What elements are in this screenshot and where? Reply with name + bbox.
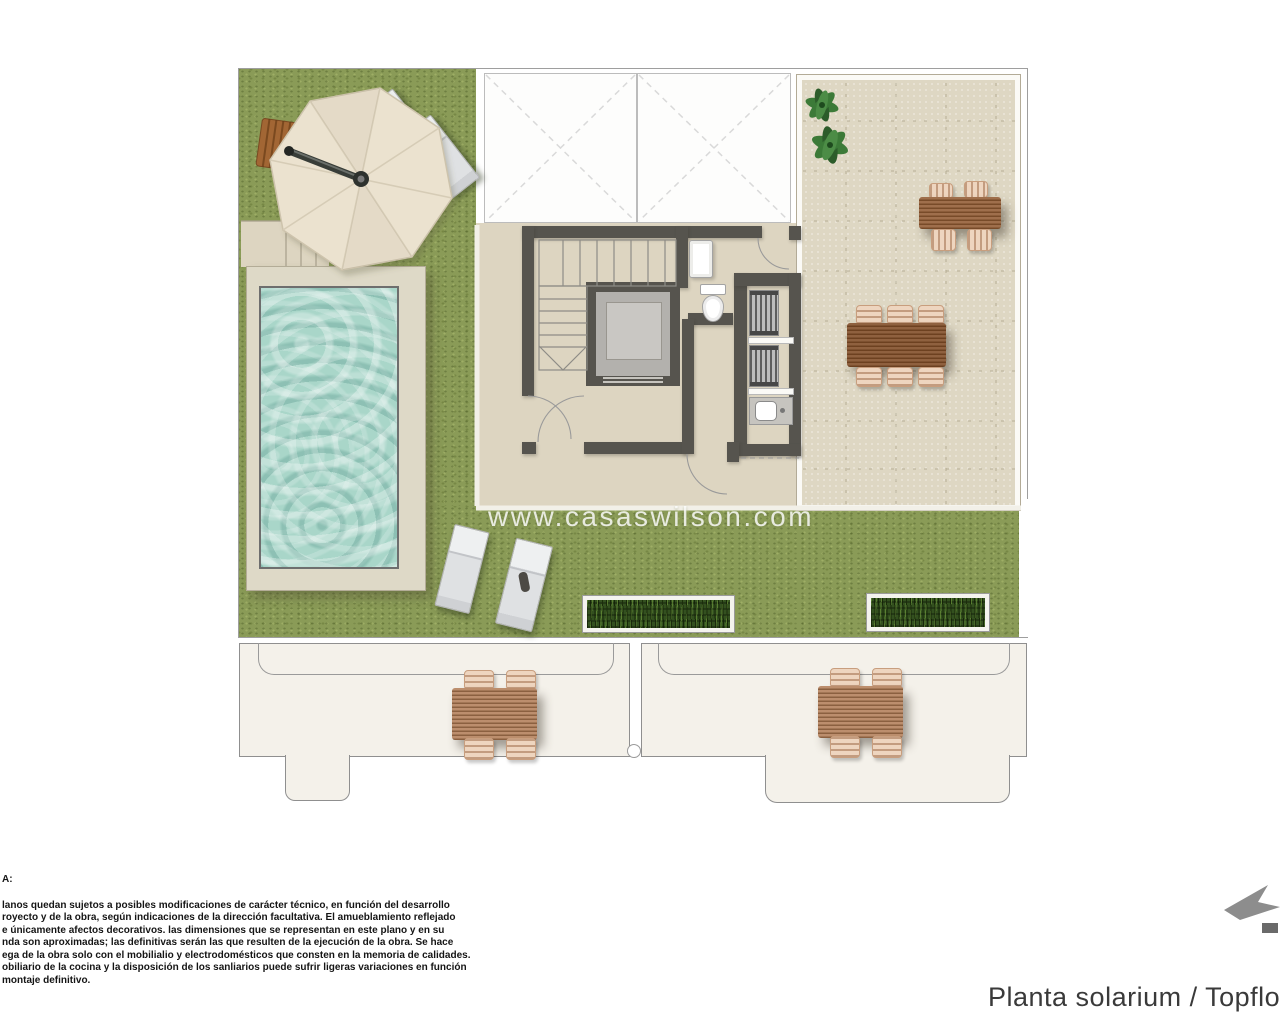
- chair: [872, 668, 902, 688]
- note-line: ega de la obra solo con el mobilialio y …: [2, 950, 432, 963]
- chair: [830, 736, 860, 758]
- staircase: [539, 240, 676, 370]
- chair: [887, 367, 913, 387]
- note-line: montaje definitivo.: [2, 975, 432, 988]
- lower-table-left: [452, 688, 537, 740]
- chair: [872, 736, 902, 758]
- parasol-arm-joint: [284, 146, 294, 156]
- logo-square: [1262, 923, 1278, 933]
- chair: [887, 305, 913, 325]
- chair: [856, 367, 882, 387]
- sink-counter: [749, 397, 793, 425]
- chair: [964, 181, 988, 198]
- chair: [506, 738, 536, 760]
- legal-note: A: lanos quedan sujetos a posibles modif…: [2, 874, 432, 987]
- lower-room-right-notch: [765, 755, 1010, 803]
- page-title: Planta solarium / Topfloor: [988, 982, 1280, 1013]
- lower-table-right: [818, 686, 903, 738]
- shelf: [748, 337, 794, 344]
- skylight-x-marks: [486, 75, 789, 221]
- cistern: [689, 240, 713, 278]
- note-line: e únicamente afectos decorativos. las di…: [2, 925, 432, 938]
- logo-arrow: [1224, 885, 1280, 920]
- louvre-unit-top: [750, 291, 778, 335]
- lower-room-left-notch: [285, 755, 350, 801]
- overhang-line-left: [258, 643, 614, 675]
- watermark: www.casaswilson.com: [488, 501, 814, 533]
- faucet: [780, 408, 785, 413]
- note-line: royecto y de la obra, según indicaciones…: [2, 912, 432, 925]
- lower-terraces: [238, 638, 1028, 818]
- parasol-hub-center: [358, 176, 365, 183]
- sink-basin: [755, 401, 777, 421]
- parasol: [244, 79, 469, 289]
- chair: [464, 670, 494, 690]
- chair: [830, 668, 860, 688]
- chair: [464, 738, 494, 760]
- page: www.casaswilson.com A: lanos quedan suje…: [0, 0, 1280, 1024]
- louvre-unit-bottom: [750, 346, 778, 386]
- chair: [506, 670, 536, 690]
- note-line: obiliario de la cocina y la disposición …: [2, 962, 432, 975]
- leaf-cluster: [804, 87, 840, 123]
- potted-plant: [792, 83, 877, 178]
- divider-notch: [627, 744, 641, 758]
- elevator-door-sill: [603, 378, 663, 382]
- dining-table-four-seats: [919, 197, 1001, 229]
- chair: [856, 305, 882, 325]
- chair: [967, 229, 992, 251]
- leaf-cluster: [810, 125, 850, 165]
- chair: [918, 305, 944, 325]
- note-line: lanos quedan sujetos a posibles modifica…: [2, 900, 432, 913]
- shelf: [748, 388, 794, 395]
- note-heading: A:: [2, 874, 432, 887]
- solarium-plan: www.casaswilson.com: [238, 68, 1028, 638]
- toilet-tank: [700, 284, 726, 295]
- chair: [931, 229, 956, 251]
- chair: [918, 367, 944, 387]
- company-logo: [1224, 885, 1280, 937]
- dining-table-six-seats: [847, 323, 946, 367]
- note-line: nda son aproximadas; las definitivas ser…: [2, 937, 432, 950]
